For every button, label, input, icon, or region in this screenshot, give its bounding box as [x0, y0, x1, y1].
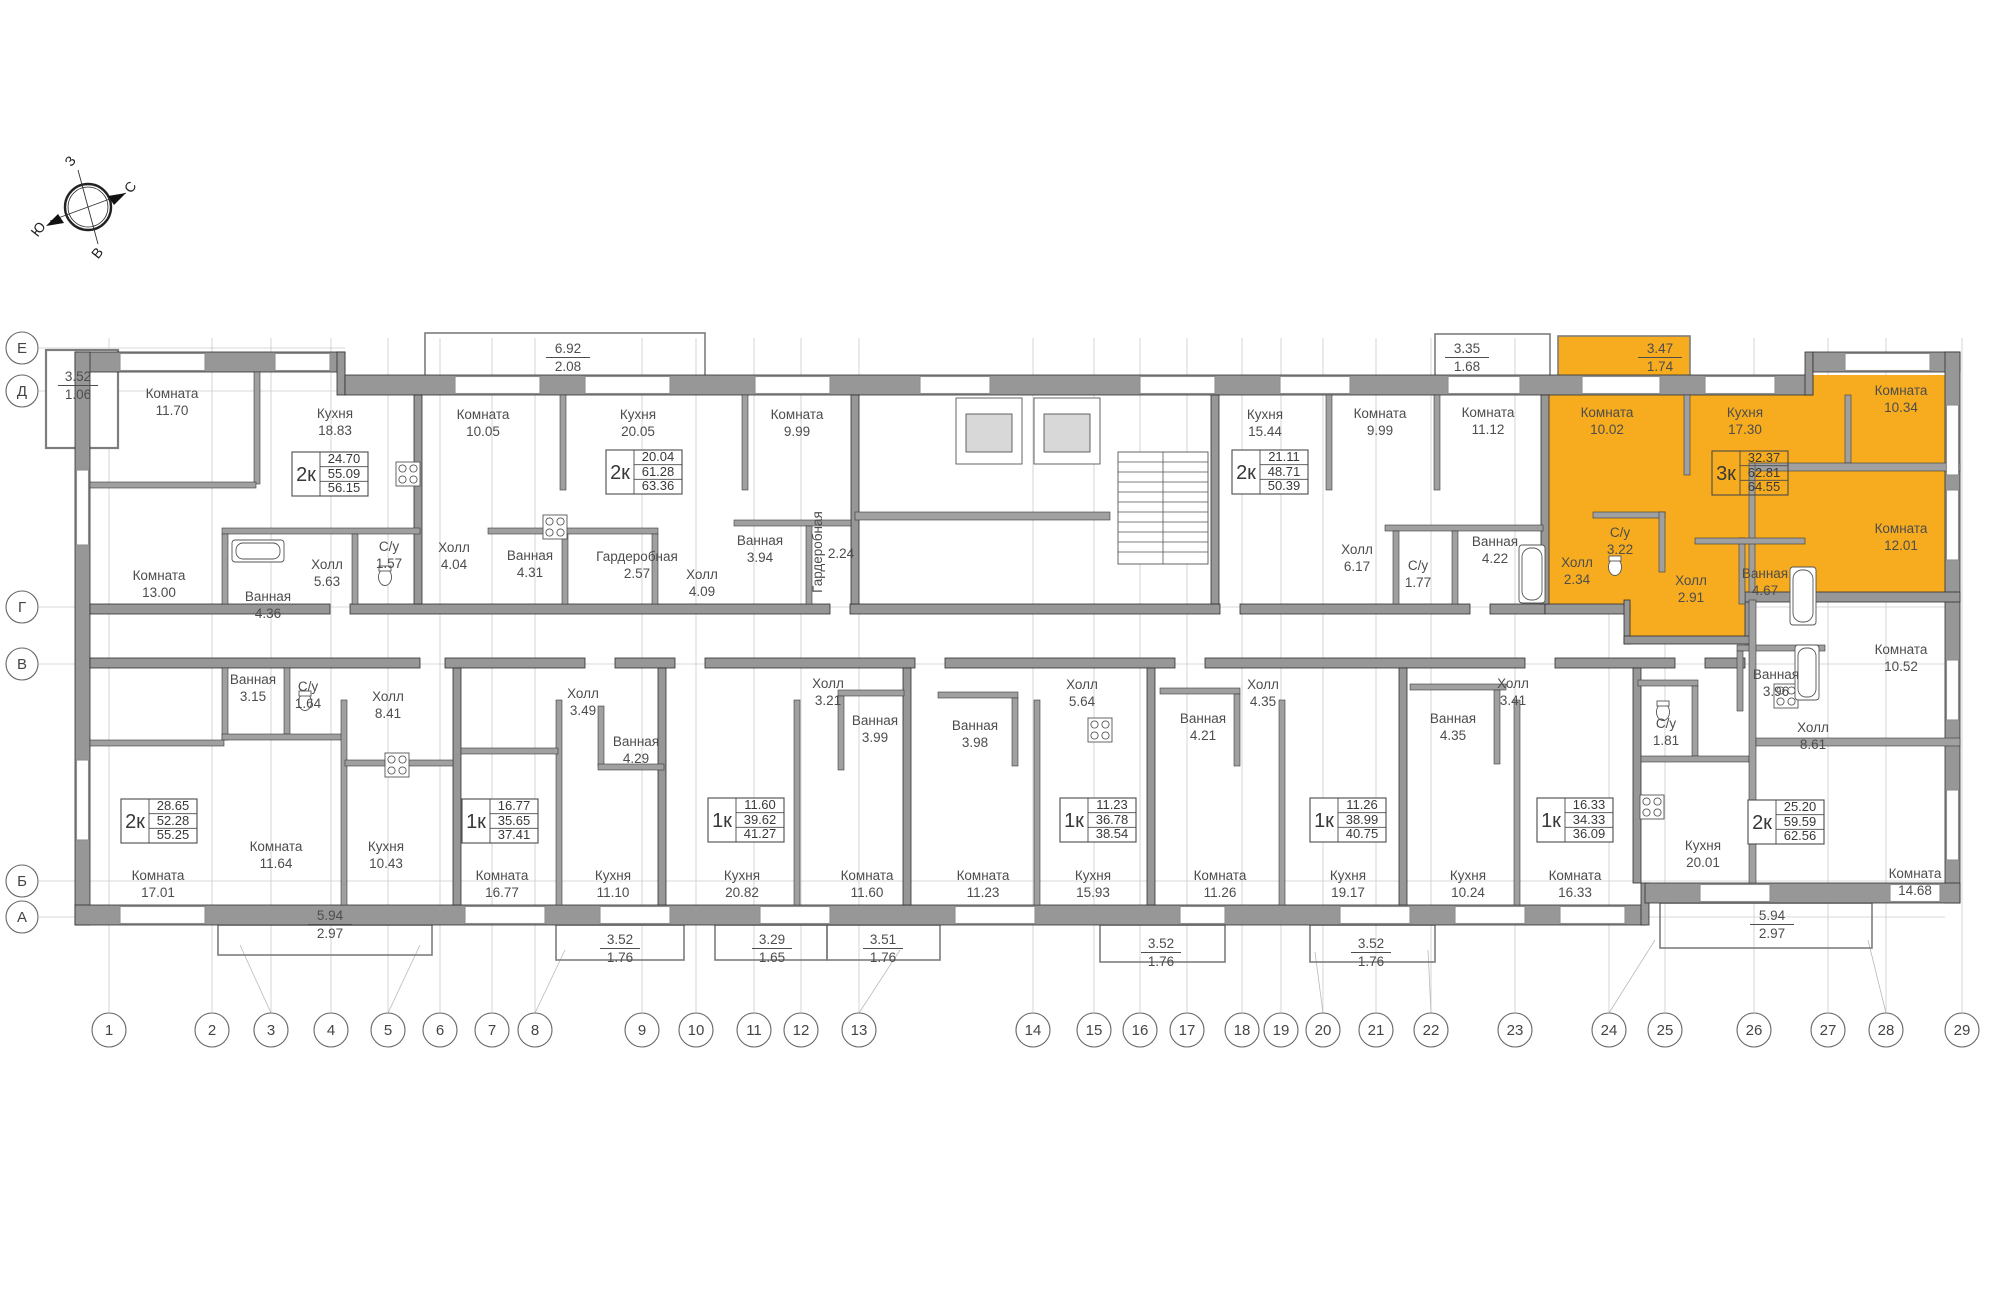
svg-text:Комната: Комната: [957, 868, 1010, 883]
apartment-8-1k[interactable]: Комната11.23 Кухня15.93 Холл5.64 Ванная3…: [952, 677, 1136, 900]
svg-text:16.77: 16.77: [498, 798, 531, 813]
svg-text:11.60: 11.60: [744, 797, 776, 812]
svg-text:10.02: 10.02: [1590, 422, 1624, 437]
svg-text:16.77: 16.77: [485, 885, 519, 900]
svg-text:Комната: Комната: [132, 868, 185, 883]
svg-text:4.67: 4.67: [1752, 583, 1778, 598]
svg-text:3.21: 3.21: [815, 693, 841, 708]
column-axis-15: 15: [1077, 1013, 1111, 1047]
svg-text:2к: 2к: [296, 464, 316, 486]
column-axis-4: 4: [314, 1013, 348, 1047]
svg-text:Ванная: Ванная: [1753, 667, 1799, 682]
svg-text:15: 15: [1086, 1022, 1103, 1039]
apartment-5-2k[interactable]: Комната17.01 Комната11.64 Кухня10.43 Ван…: [121, 672, 404, 900]
svg-text:10.24: 10.24: [1451, 885, 1485, 900]
row-axis-G: Г: [6, 591, 38, 623]
stove-icon: [543, 515, 567, 539]
room-label: Комната11.12: [1462, 405, 1515, 437]
compass-east-label: В: [88, 244, 106, 261]
column-axis-3: 3: [254, 1013, 288, 1047]
apartment-summary-box: 2к 28.65 52.28 55.25: [121, 798, 197, 843]
svg-text:Комната: Комната: [1549, 868, 1602, 883]
svg-text:Кухня: Кухня: [1330, 868, 1366, 883]
svg-text:61.28: 61.28: [642, 464, 675, 479]
column-axis-25: 25: [1648, 1013, 1682, 1047]
svg-text:Г: Г: [18, 599, 26, 616]
svg-text:15.93: 15.93: [1076, 885, 1110, 900]
column-axis-24: 24: [1592, 1013, 1626, 1047]
compass-south-label: Ю: [27, 218, 48, 239]
room-label: Кухня15.44: [1247, 407, 1283, 439]
svg-text:Холл: Холл: [438, 540, 470, 555]
svg-text:11.23: 11.23: [1096, 797, 1128, 812]
svg-text:Холл: Холл: [686, 567, 718, 582]
column-axis-9: 9: [625, 1013, 659, 1047]
svg-text:Холл: Холл: [812, 676, 844, 691]
column-axis-11: 11: [737, 1013, 771, 1047]
svg-text:52.28: 52.28: [157, 813, 190, 828]
svg-text:1к: 1к: [1541, 810, 1561, 832]
svg-text:4.09: 4.09: [689, 584, 715, 599]
svg-text:3.49: 3.49: [570, 703, 596, 718]
svg-text:14: 14: [1025, 1022, 1042, 1039]
svg-text:21.11: 21.11: [1268, 449, 1300, 464]
svg-text:3.51: 3.51: [870, 932, 896, 947]
svg-text:2к: 2к: [125, 811, 145, 833]
room-label: Холл4.35: [1247, 677, 1279, 709]
highlight-body-right: [1751, 375, 1958, 592]
svg-text:3.35: 3.35: [1454, 341, 1480, 356]
svg-text:15.44: 15.44: [1248, 424, 1282, 439]
svg-text:13.00: 13.00: [142, 585, 176, 600]
svg-text:Холл: Холл: [1497, 676, 1529, 691]
svg-text:3.47: 3.47: [1647, 341, 1673, 356]
svg-text:16.33: 16.33: [1573, 797, 1606, 812]
svg-text:Ванная: Ванная: [852, 713, 898, 728]
svg-text:Кухня: Кухня: [1075, 868, 1111, 883]
svg-text:4.29: 4.29: [623, 751, 649, 766]
svg-text:Комната: Комната: [1462, 405, 1515, 420]
svg-text:Комната: Комната: [1875, 383, 1928, 398]
svg-text:20.05: 20.05: [621, 424, 655, 439]
svg-text:24: 24: [1601, 1022, 1618, 1039]
svg-text:Б: Б: [17, 873, 27, 890]
svg-text:11.64: 11.64: [260, 856, 293, 871]
svg-text:Комната: Комната: [250, 839, 303, 854]
svg-text:1к: 1к: [1064, 810, 1084, 832]
svg-text:3.98: 3.98: [962, 735, 988, 750]
balcony-label: 3.351.68: [1445, 341, 1489, 374]
stove-icon: [396, 462, 420, 486]
room-label: Кухня15.93: [1075, 868, 1111, 900]
svg-text:3к: 3к: [1716, 463, 1736, 485]
svg-text:38.99: 38.99: [1346, 812, 1379, 827]
column-axis-28: 28: [1869, 1013, 1903, 1047]
svg-text:С/у: С/у: [1656, 716, 1677, 731]
svg-text:Комната: Комната: [1875, 521, 1928, 536]
stove-icon: [1640, 795, 1664, 819]
svg-text:Комната: Комната: [1354, 406, 1407, 421]
svg-text:Холл: Холл: [1675, 573, 1707, 588]
column-axes: 1 2 3 4 5 6 7 8 9 10 11 12 13 14 15 16 1…: [92, 1013, 1979, 1047]
column-axis-29: 29: [1945, 1013, 1979, 1047]
svg-text:25: 25: [1657, 1022, 1674, 1039]
balcony: [1435, 334, 1550, 378]
row-axis-D: Д: [6, 375, 38, 407]
svg-text:Холл: Холл: [1341, 542, 1373, 557]
svg-text:Ванная: Ванная: [1742, 566, 1788, 581]
elevator-shafts: [956, 398, 1100, 464]
svg-text:Е: Е: [17, 340, 27, 357]
svg-text:А: А: [17, 909, 27, 926]
svg-text:36.09: 36.09: [1573, 826, 1606, 841]
room-label: Холл5.64: [1066, 677, 1098, 709]
svg-text:19: 19: [1273, 1022, 1290, 1039]
svg-text:1.76: 1.76: [1148, 954, 1174, 969]
svg-text:10.43: 10.43: [369, 856, 403, 871]
row-axis-V: В: [6, 648, 38, 680]
svg-text:40.75: 40.75: [1346, 826, 1379, 841]
room-label: Кухня20.05: [620, 407, 656, 439]
svg-text:56.15: 56.15: [328, 480, 361, 495]
svg-text:3.94: 3.94: [747, 550, 774, 565]
svg-text:Ванная: Ванная: [1472, 534, 1518, 549]
column-axis-7: 7: [475, 1013, 509, 1047]
svg-text:2.97: 2.97: [317, 926, 343, 941]
balcony-label: 3.521.76: [1141, 936, 1181, 969]
room-label: Комната11.70: [146, 386, 199, 418]
svg-text:Ванная: Ванная: [1430, 711, 1476, 726]
svg-text:2.34: 2.34: [1564, 572, 1591, 587]
svg-text:64.55: 64.55: [1748, 479, 1781, 494]
svg-text:3.52: 3.52: [65, 369, 91, 384]
bathtub-icon: [232, 540, 284, 562]
svg-text:Гардеробная: Гардеробная: [596, 549, 678, 564]
svg-text:11.10: 11.10: [597, 885, 630, 900]
apartment-summary-box: 1к 16.33 34.33 36.09: [1537, 797, 1613, 842]
toilet-icon: [1609, 556, 1622, 576]
svg-text:Д: Д: [17, 383, 27, 400]
row-axis-A: А: [6, 901, 38, 933]
column-axis-18: 18: [1225, 1013, 1259, 1047]
svg-text:16.33: 16.33: [1558, 885, 1592, 900]
svg-text:Комната: Комната: [1875, 642, 1928, 657]
balcony-label: 3.521.76: [1351, 936, 1391, 969]
room-label: Кухня20.82: [724, 868, 760, 900]
svg-text:20: 20: [1315, 1022, 1332, 1039]
svg-text:7: 7: [488, 1022, 496, 1039]
balcony-label: 6.922.08: [546, 341, 590, 374]
svg-text:28: 28: [1878, 1022, 1895, 1039]
svg-text:Холл: Холл: [1247, 677, 1279, 692]
svg-text:16: 16: [1132, 1022, 1149, 1039]
column-axis-22: 22: [1414, 1013, 1448, 1047]
apartment-summary-box: 1к 11.23 36.78 38.54: [1060, 797, 1136, 842]
svg-text:Холл: Холл: [1561, 555, 1593, 570]
svg-text:63.36: 63.36: [642, 478, 675, 493]
svg-text:5.63: 5.63: [314, 574, 340, 589]
svg-text:62.81: 62.81: [1748, 465, 1781, 480]
room-label: С/у1.57: [376, 539, 402, 571]
svg-text:2: 2: [208, 1022, 216, 1039]
svg-text:1к: 1к: [1314, 810, 1334, 832]
svg-text:Ванная: Ванная: [230, 672, 276, 687]
svg-text:5.64: 5.64: [1069, 694, 1096, 709]
room-label: Комната10.05: [457, 407, 510, 439]
svg-text:20.01: 20.01: [1686, 855, 1720, 870]
svg-text:3.29: 3.29: [759, 932, 785, 947]
column-axis-26: 26: [1737, 1013, 1771, 1047]
svg-text:17.01: 17.01: [141, 885, 175, 900]
svg-text:11.60: 11.60: [851, 885, 884, 900]
svg-text:62.56: 62.56: [1784, 828, 1817, 843]
svg-text:Кухня: Кухня: [1727, 405, 1763, 420]
column-axis-27: 27: [1811, 1013, 1845, 1047]
svg-text:1.68: 1.68: [1454, 359, 1480, 374]
svg-text:1.81: 1.81: [1653, 733, 1679, 748]
svg-text:27: 27: [1820, 1022, 1837, 1039]
column-axis-20: 20: [1306, 1013, 1340, 1047]
room-label: С/у1.77: [1405, 558, 1431, 590]
svg-text:6.17: 6.17: [1344, 559, 1370, 574]
svg-text:4.31: 4.31: [517, 565, 543, 580]
svg-text:8.41: 8.41: [375, 706, 401, 721]
svg-text:1к: 1к: [712, 810, 732, 832]
svg-text:35.65: 35.65: [498, 813, 531, 828]
room-label: Кухня18.83: [317, 406, 353, 438]
svg-text:8: 8: [531, 1022, 539, 1039]
column-axis-12: 12: [784, 1013, 818, 1047]
room-label: Ванная4.35: [1430, 711, 1476, 743]
svg-text:14.68: 14.68: [1898, 883, 1932, 898]
room-label: Кухня19.17: [1330, 868, 1366, 900]
svg-text:Кухня: Кухня: [368, 839, 404, 854]
svg-text:Комната: Комната: [133, 568, 186, 583]
svg-text:Гардеробная: Гардеробная: [810, 511, 825, 593]
svg-text:10.05: 10.05: [466, 424, 500, 439]
svg-text:3.96: 3.96: [1763, 684, 1789, 699]
apartment-3-2k[interactable]: Кухня15.44 Комната9.99 Комната11.12 Холл…: [1232, 405, 1518, 590]
svg-text:4.35: 4.35: [1250, 694, 1276, 709]
svg-text:32.37: 32.37: [1748, 450, 1781, 465]
balcony-label: 5.942.97: [1750, 908, 1794, 941]
room-label: Кухня11.10: [595, 868, 631, 900]
apartment-summary-box: 2к 24.70 55.09 56.15: [292, 451, 368, 496]
svg-text:С/у: С/у: [298, 679, 319, 694]
svg-text:6: 6: [436, 1022, 444, 1039]
svg-text:4.36: 4.36: [255, 606, 281, 621]
svg-text:2.24: 2.24: [828, 546, 855, 561]
svg-text:Комната: Комната: [841, 868, 894, 883]
svg-text:Ванная: Ванная: [613, 734, 659, 749]
svg-text:11.12: 11.12: [1472, 422, 1505, 437]
svg-text:37.41: 37.41: [498, 827, 531, 842]
room-label: Гардеробная2.57: [596, 549, 678, 581]
room-label: Ванная3.94: [737, 533, 783, 565]
svg-text:В: В: [17, 656, 27, 673]
svg-text:С/у: С/у: [1610, 525, 1631, 540]
svg-text:18.83: 18.83: [318, 423, 352, 438]
svg-text:36.78: 36.78: [1096, 812, 1129, 827]
apartment-1-2k[interactable]: Комната11.70 Кухня18.83 Комната13.00 Ван…: [133, 386, 403, 621]
svg-text:Холл: Холл: [372, 689, 404, 704]
svg-text:3.15: 3.15: [240, 689, 266, 704]
svg-text:6.92: 6.92: [555, 341, 581, 356]
room-label: Кухня20.01: [1685, 838, 1721, 870]
room-label: Холл8.61: [1797, 720, 1829, 752]
room-label: Комната17.01: [132, 868, 185, 900]
room-label: Кухня10.43: [368, 839, 404, 871]
column-axis-10: 10: [679, 1013, 713, 1047]
svg-text:1к: 1к: [466, 811, 486, 833]
room-label: Холл3.49: [567, 686, 599, 718]
svg-text:1.74: 1.74: [1647, 359, 1674, 374]
column-axis-2: 2: [195, 1013, 229, 1047]
svg-text:18: 18: [1234, 1022, 1251, 1039]
svg-text:5.94: 5.94: [317, 908, 344, 923]
svg-text:55.25: 55.25: [157, 827, 190, 842]
svg-text:17.30: 17.30: [1728, 422, 1762, 437]
svg-text:50.39: 50.39: [1268, 478, 1301, 493]
room-label: Холл6.17: [1341, 542, 1373, 574]
compass-south-arrow: [46, 214, 64, 226]
svg-text:Комната: Комната: [1889, 866, 1942, 881]
svg-text:С/у: С/у: [1408, 558, 1429, 573]
svg-text:3.52: 3.52: [1358, 936, 1384, 951]
svg-text:11.26: 11.26: [1346, 797, 1378, 812]
svg-text:1.06: 1.06: [65, 387, 91, 402]
svg-text:24.70: 24.70: [328, 451, 361, 466]
svg-text:Комната: Комната: [476, 868, 529, 883]
svg-text:4.21: 4.21: [1190, 728, 1216, 743]
room-label: Холл4.09: [686, 567, 718, 599]
svg-text:3: 3: [267, 1022, 275, 1039]
room-label: Холл5.63: [311, 557, 343, 589]
room-label: Холл4.04: [438, 540, 470, 572]
svg-text:28.65: 28.65: [157, 798, 190, 813]
room-label: Комната11.64: [250, 839, 303, 871]
svg-text:2.91: 2.91: [1678, 590, 1704, 605]
room-label: Комната11.26: [1194, 868, 1247, 900]
svg-text:2.08: 2.08: [555, 359, 581, 374]
svg-text:Холл: Холл: [1066, 677, 1098, 692]
column-axis-19: 19: [1264, 1013, 1298, 1047]
room-label: Комната16.33: [1549, 868, 1602, 900]
svg-text:Ванная: Ванная: [952, 718, 998, 733]
svg-text:29: 29: [1954, 1022, 1971, 1039]
bathtub-icon: [1519, 545, 1545, 603]
svg-text:9: 9: [638, 1022, 646, 1039]
svg-text:Кухня: Кухня: [724, 868, 760, 883]
room-label: Ванная4.29: [613, 734, 659, 766]
apartment-2-2k[interactable]: Комната10.05 Кухня20.05 Комната9.99 Холл…: [438, 407, 855, 599]
svg-text:Ванная: Ванная: [507, 548, 553, 563]
stove-icon: [1088, 718, 1112, 742]
svg-text:1.76: 1.76: [870, 950, 896, 965]
apartment-7-1k[interactable]: Кухня20.82 Комната11.60 Холл3.21 Ванная3…: [708, 676, 898, 900]
svg-text:22: 22: [1423, 1022, 1440, 1039]
svg-text:10: 10: [688, 1022, 705, 1039]
svg-text:Ванная: Ванная: [1180, 711, 1226, 726]
apartment-summary-box: 1к 16.77 35.65 37.41: [462, 798, 538, 843]
svg-text:10.52: 10.52: [1884, 659, 1918, 674]
row-axis-B: Б: [6, 865, 38, 897]
bathtub-icon: [1790, 567, 1816, 625]
column-axis-13: 13: [842, 1013, 876, 1047]
svg-text:26: 26: [1746, 1022, 1763, 1039]
svg-text:9.99: 9.99: [1367, 423, 1393, 438]
svg-text:Комната: Комната: [457, 407, 510, 422]
svg-text:Кухня: Кухня: [595, 868, 631, 883]
apartment-10-1k[interactable]: Кухня10.24 Комната16.33 Холл3.41 Ванная4…: [1430, 676, 1613, 900]
svg-text:2к: 2к: [1752, 812, 1772, 834]
svg-text:5: 5: [384, 1022, 392, 1039]
compass-north-label: С: [121, 178, 140, 196]
svg-text:2к: 2к: [1236, 462, 1256, 484]
compass-icon: З С В Ю: [27, 153, 139, 262]
svg-text:Холл: Холл: [311, 557, 343, 572]
svg-text:1.64: 1.64: [295, 696, 322, 711]
svg-text:23: 23: [1507, 1022, 1524, 1039]
svg-text:20.82: 20.82: [725, 885, 759, 900]
svg-text:Кухня: Кухня: [1450, 868, 1486, 883]
svg-text:2.97: 2.97: [1759, 926, 1785, 941]
svg-text:8.61: 8.61: [1800, 737, 1826, 752]
column-axis-8: 8: [518, 1013, 552, 1047]
svg-text:Кухня: Кухня: [620, 407, 656, 422]
floor-plan: З С В Ю Е Д Г В Б А 1 2 3 4 5 6 7 8 9 10…: [0, 0, 2000, 1300]
svg-text:2к: 2к: [610, 462, 630, 484]
column-axis-16: 16: [1123, 1013, 1157, 1047]
svg-text:1.77: 1.77: [1405, 575, 1431, 590]
svg-text:Комната: Комната: [1194, 868, 1247, 883]
svg-text:59.59: 59.59: [1784, 814, 1817, 829]
compass-west-label: З: [61, 153, 79, 170]
room-label: Ванная3.15: [230, 672, 276, 704]
svg-text:Кухня: Кухня: [1685, 838, 1721, 853]
svg-text:12: 12: [793, 1022, 810, 1039]
svg-text:Комната: Комната: [1581, 405, 1634, 420]
svg-text:9.99: 9.99: [784, 424, 810, 439]
svg-text:3.41: 3.41: [1500, 693, 1526, 708]
row-axis-E: Е: [6, 332, 38, 364]
stairs: [1118, 452, 1208, 564]
room-label: Комната13.00: [133, 568, 186, 600]
svg-text:34.33: 34.33: [1573, 812, 1606, 827]
svg-text:Холл: Холл: [567, 686, 599, 701]
apartment-summary-box: 2к 20.04 61.28 63.36: [606, 449, 682, 494]
column-axis-1: 1: [92, 1013, 126, 1047]
svg-text:4.22: 4.22: [1482, 551, 1508, 566]
svg-text:Кухня: Кухня: [1247, 407, 1283, 422]
svg-text:11.70: 11.70: [156, 403, 189, 418]
svg-text:Ванная: Ванная: [737, 533, 783, 548]
stove-icon: [385, 753, 409, 777]
room-label: Комната10.52: [1875, 642, 1928, 674]
column-axis-21: 21: [1359, 1013, 1393, 1047]
svg-text:1: 1: [105, 1022, 113, 1039]
svg-text:3.22: 3.22: [1607, 542, 1633, 557]
column-axis-6: 6: [423, 1013, 457, 1047]
svg-text:21: 21: [1368, 1022, 1385, 1039]
svg-text:2.57: 2.57: [624, 566, 650, 581]
svg-text:19.17: 19.17: [1331, 885, 1365, 900]
svg-text:4.35: 4.35: [1440, 728, 1466, 743]
apartment-summary-box: 1к 11.60 39.62 41.27: [708, 797, 784, 842]
svg-text:1.76: 1.76: [607, 950, 633, 965]
svg-text:С/у: С/у: [379, 539, 400, 554]
svg-text:25.20: 25.20: [1784, 799, 1817, 814]
